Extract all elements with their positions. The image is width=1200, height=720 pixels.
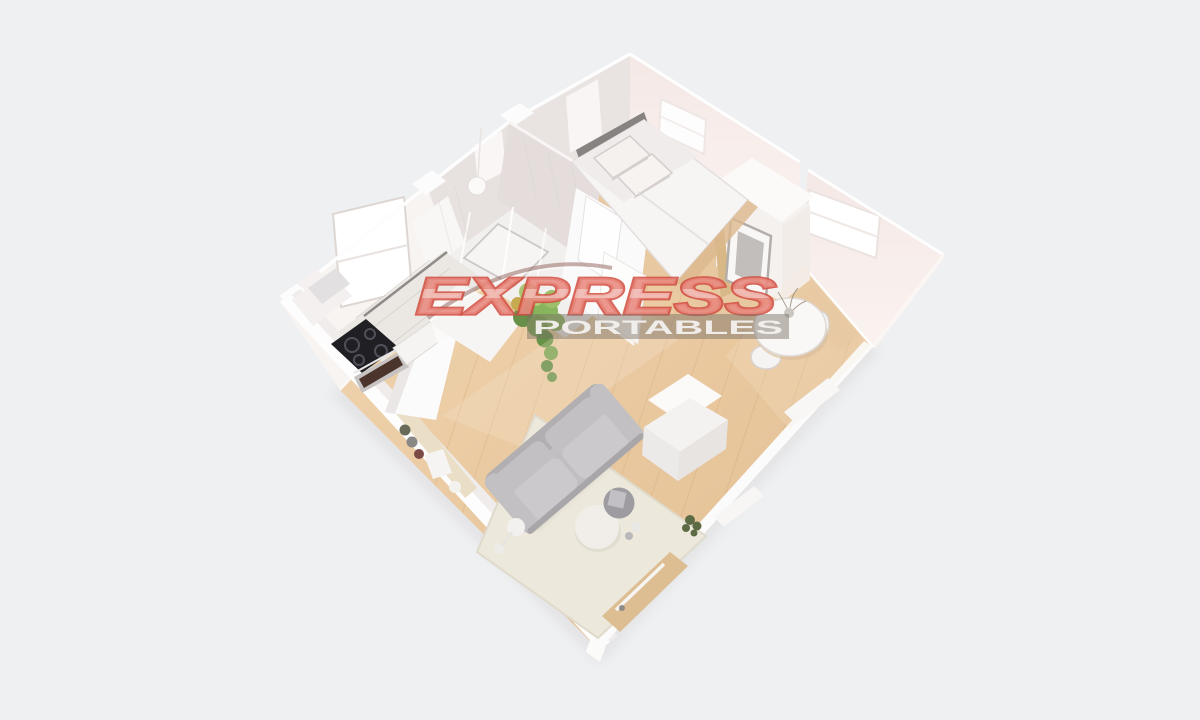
svg-text:PORTABLES: PORTABLES bbox=[533, 318, 783, 339]
